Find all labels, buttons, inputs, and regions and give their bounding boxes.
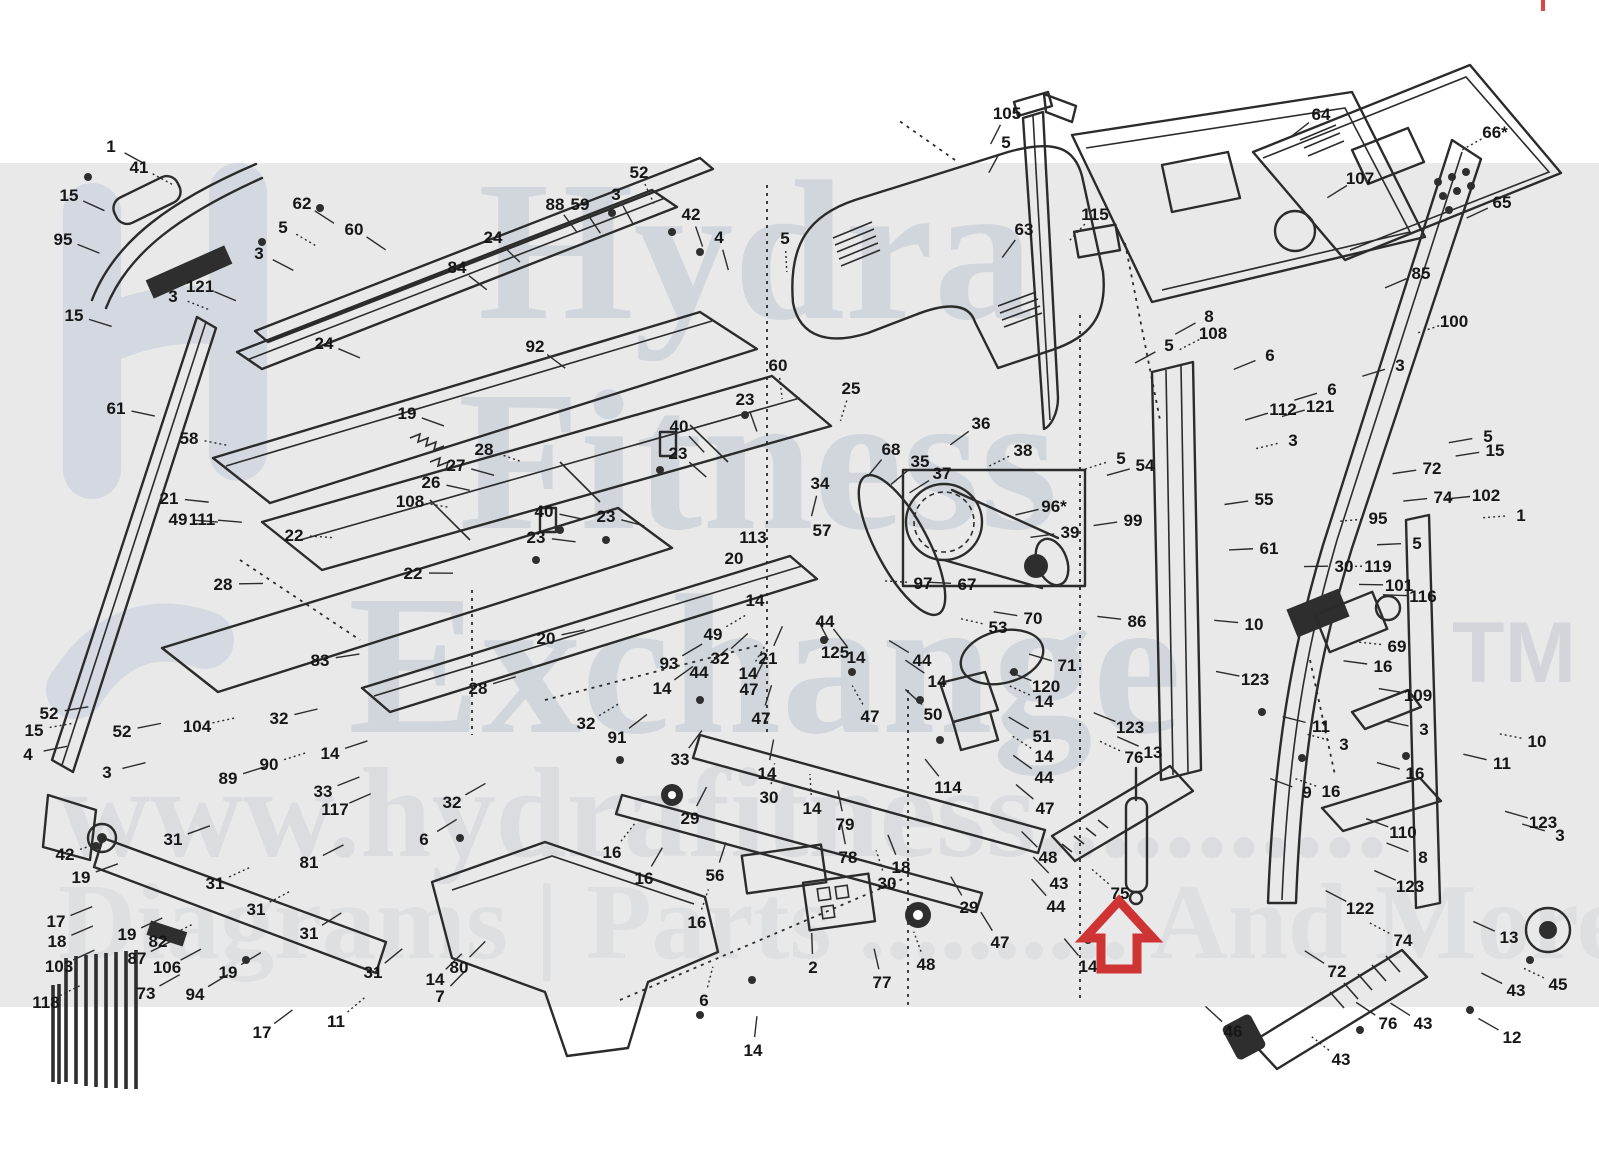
part-label-14: 14: [1035, 692, 1054, 711]
part-label-38: 38: [1014, 441, 1033, 460]
part-label-86: 86: [1128, 612, 1147, 631]
part-label-14: 14: [847, 648, 866, 667]
part-label-18: 18: [892, 858, 911, 877]
part-label-17: 17: [47, 912, 66, 931]
part-label-123: 123: [1529, 813, 1557, 832]
part-label-15: 15: [1486, 441, 1505, 460]
part-label-79: 79: [836, 815, 855, 834]
part-label-12: 12: [1503, 1028, 1522, 1047]
part-label-76: 76: [1125, 748, 1144, 767]
part-label-88: 88: [546, 195, 565, 214]
part-label-46: 46: [1224, 1022, 1243, 1041]
part-label-71: 71: [1058, 656, 1077, 675]
part-label-105: 105: [993, 104, 1021, 123]
exploded-parts-diagram: Hydra Fitness Exchange TM www.hydrafitne…: [0, 0, 1599, 1169]
part-label-111: 111: [189, 510, 216, 529]
part-label-29: 29: [960, 898, 979, 917]
part-label-22: 22: [404, 564, 423, 583]
part-label-33: 33: [671, 750, 690, 769]
part-label-5: 5: [1412, 534, 1421, 553]
part-label-4: 4: [714, 228, 724, 247]
part-label-2: 2: [808, 958, 817, 977]
part-label-15: 15: [60, 186, 79, 205]
part-label-72: 72: [1423, 459, 1442, 478]
part-label-11: 11: [1312, 717, 1330, 736]
part-label-66*: 66*: [1482, 123, 1508, 142]
part-label-3: 3: [1288, 431, 1297, 450]
part-label-121: 121: [1306, 397, 1334, 416]
part-label-43: 43: [1414, 1014, 1433, 1033]
part-label-4: 4: [23, 745, 33, 764]
part-label-52: 52: [630, 163, 649, 182]
part-label-84: 84: [448, 258, 467, 277]
part-label-60: 60: [345, 220, 364, 239]
part-label-20: 20: [725, 549, 744, 568]
part-label-80: 80: [450, 958, 469, 977]
part-label-74: 74: [1394, 931, 1413, 950]
part-label-65: 65: [1493, 193, 1512, 212]
part-label-17: 17: [253, 1023, 272, 1042]
part-label-106: 106: [153, 958, 181, 977]
part-label-50: 50: [924, 705, 943, 724]
part-label-39: 39: [1061, 523, 1080, 542]
part-label-59: 59: [571, 195, 590, 214]
part-label-3: 3: [611, 185, 620, 204]
part-label-10: 10: [1245, 615, 1264, 634]
part-label-16: 16: [1322, 782, 1341, 801]
part-label-110: 110: [1389, 823, 1416, 842]
part-label-44: 44: [1035, 768, 1054, 787]
part-label-26: 26: [422, 473, 441, 492]
part-label-28: 28: [214, 575, 233, 594]
part-label-95: 95: [1369, 509, 1388, 528]
part-label-6: 6: [699, 991, 708, 1010]
part-label-81: 81: [300, 853, 319, 872]
part-label-14: 14: [803, 799, 822, 818]
part-label-109: 109: [1404, 686, 1432, 705]
part-label-16: 16: [635, 869, 654, 888]
part-label-58: 58: [180, 429, 199, 448]
part-label-3: 3: [1555, 826, 1564, 845]
watermark-bottom-row: Diagrams | Parts .......... And More: [58, 863, 1599, 982]
part-label-14: 14: [1079, 957, 1098, 976]
part-label-63: 63: [1015, 220, 1034, 239]
part-label-117: 117: [321, 800, 348, 819]
part-label-19: 19: [398, 404, 417, 423]
part-label-102: 102: [1472, 486, 1500, 505]
part-label-11: 11: [1493, 754, 1511, 773]
red-tick-mark: [1541, 0, 1545, 11]
part-label-64: 64: [1312, 105, 1331, 124]
part-label-47: 47: [1036, 799, 1055, 818]
part-label-122: 122: [1346, 899, 1374, 918]
part-label-32: 32: [443, 793, 462, 812]
part-label-76: 76: [1379, 1014, 1398, 1033]
part-label-123: 123: [1241, 670, 1269, 689]
part-label-56: 56: [706, 866, 725, 885]
part-label-27: 27: [447, 456, 466, 475]
part-label-14: 14: [744, 1041, 763, 1060]
part-label-93: 93: [660, 654, 679, 673]
part-label-5: 5: [1116, 449, 1125, 468]
part-label-1: 1: [1516, 506, 1525, 525]
part-label-15: 15: [65, 306, 84, 325]
part-label-16: 16: [603, 843, 622, 862]
part-label-99: 99: [1124, 511, 1143, 530]
part-label-113: 113: [739, 528, 766, 547]
part-label-54: 54: [1136, 456, 1155, 475]
part-label-31: 31: [206, 874, 225, 893]
part-label-37: 37: [933, 464, 952, 483]
part-label-48: 48: [917, 955, 936, 974]
part-label-116: 116: [1409, 587, 1436, 606]
part-label-100: 100: [1440, 312, 1468, 331]
part-label-23: 23: [527, 528, 546, 547]
part-label-30: 30: [760, 788, 779, 807]
part-label-22: 22: [285, 526, 304, 545]
part-label-62: 62: [293, 194, 312, 213]
part-label-11: 11: [327, 1012, 345, 1031]
part-label-69: 69: [1388, 637, 1407, 656]
part-label-6: 6: [1265, 346, 1274, 365]
part-label-32: 32: [270, 709, 289, 728]
part-label-61: 61: [1260, 539, 1279, 558]
part-label-24: 24: [315, 334, 334, 353]
part-label-31: 31: [247, 900, 266, 919]
part-label-61: 61: [107, 399, 126, 418]
part-label-32: 32: [577, 714, 596, 733]
part-label-19: 19: [118, 925, 137, 944]
part-label-112: 112: [1269, 400, 1296, 419]
part-label-3: 3: [102, 763, 111, 782]
part-label-89: 89: [219, 769, 238, 788]
part-label-123: 123: [1396, 877, 1424, 896]
part-label-115: 115: [1081, 205, 1108, 224]
part-label-49: 49: [169, 510, 188, 529]
part-label-95: 95: [54, 230, 73, 249]
part-label-85: 85: [1412, 264, 1431, 283]
part-label-23: 23: [597, 507, 616, 526]
leader-line: [812, 933, 813, 954]
part-label-14: 14: [746, 591, 765, 610]
part-label-82: 82: [149, 932, 168, 951]
part-label-107: 107: [1346, 169, 1374, 188]
part-label-49: 49: [704, 625, 723, 644]
part-label-104: 104: [183, 717, 212, 736]
part-label-114: 114: [934, 778, 962, 797]
part-label-13: 13: [1500, 928, 1519, 947]
part-label-103: 103: [45, 957, 73, 976]
part-label-31: 31: [364, 963, 383, 982]
part-label-31: 31: [300, 924, 319, 943]
part-label-43: 43: [1332, 1050, 1351, 1069]
part-label-30: 30: [1335, 557, 1354, 576]
part-label-35: 35: [911, 452, 930, 471]
part-label-94: 94: [186, 985, 205, 1004]
part-label-42: 42: [56, 845, 75, 864]
part-label-72: 72: [1328, 962, 1347, 981]
part-label-3: 3: [1339, 735, 1348, 754]
part-label-125: 125: [821, 643, 849, 662]
part-label-36: 36: [972, 414, 991, 433]
part-label-42: 42: [682, 205, 701, 224]
part-label-83: 83: [311, 651, 330, 670]
part-label-24: 24: [484, 228, 503, 247]
part-label-43: 43: [1050, 874, 1069, 893]
part-label-15: 15: [25, 721, 44, 740]
part-label-91: 91: [608, 728, 627, 747]
part-label-70: 70: [1024, 609, 1043, 628]
part-label-7: 7: [435, 987, 444, 1006]
part-label-74: 74: [1434, 488, 1453, 507]
part-label-87: 87: [128, 949, 147, 968]
part-label-10: 10: [1528, 732, 1547, 751]
part-label-28: 28: [469, 679, 488, 698]
part-label-44: 44: [690, 663, 709, 682]
part-label-14: 14: [1035, 747, 1054, 766]
part-label-51: 51: [1033, 727, 1052, 746]
part-label-44: 44: [816, 612, 835, 631]
part-label-19: 19: [219, 963, 238, 982]
part-label-5: 5: [1001, 133, 1010, 152]
part-label-45: 45: [1549, 975, 1568, 994]
part-label-47: 47: [752, 709, 771, 728]
part-label-3: 3: [1419, 720, 1428, 739]
part-label-67: 67: [958, 575, 977, 594]
part-label-31: 31: [164, 830, 183, 849]
part-label-23: 23: [736, 390, 755, 409]
part-label-3: 3: [254, 244, 263, 263]
part-label-34: 34: [811, 474, 830, 493]
part-label-5: 5: [278, 218, 287, 237]
part-label-18: 18: [48, 932, 67, 951]
part-label-119: 119: [1364, 557, 1391, 576]
part-label-16: 16: [1374, 657, 1393, 676]
part-label-19: 19: [72, 868, 91, 887]
part-label-13: 13: [1144, 743, 1163, 762]
part-label-108: 108: [396, 492, 424, 511]
part-label-14: 14: [928, 672, 947, 691]
part-label-57: 57: [813, 521, 832, 540]
parts-diagram-page: Hydra Fitness Exchange TM www.hydrafitne…: [0, 0, 1599, 1169]
part-label-14: 14: [653, 679, 672, 698]
part-label-3: 3: [168, 287, 177, 306]
part-label-78: 78: [839, 848, 858, 867]
part-label-48: 48: [1039, 848, 1058, 867]
part-label-77: 77: [873, 973, 892, 992]
part-label-121: 121: [186, 277, 214, 296]
part-label-97: 97: [914, 574, 933, 593]
part-label-25: 25: [842, 379, 861, 398]
part-label-3: 3: [1395, 356, 1404, 375]
part-label-16: 16: [688, 913, 707, 932]
part-label-40: 40: [670, 417, 689, 436]
part-label-123: 123: [1116, 718, 1144, 737]
part-label-23: 23: [669, 444, 688, 463]
part-label-44: 44: [1047, 897, 1066, 916]
part-label-40: 40: [535, 502, 554, 521]
part-label-14: 14: [758, 764, 777, 783]
part-label-47: 47: [740, 680, 759, 699]
part-label-33: 33: [314, 782, 333, 801]
part-label-5: 5: [1164, 336, 1173, 355]
part-label-53: 53: [989, 618, 1008, 637]
part-label-68: 68: [882, 440, 901, 459]
part-label-55: 55: [1255, 490, 1274, 509]
part-label-32: 32: [711, 649, 730, 668]
part-label-47: 47: [861, 707, 880, 726]
part-label-118: 118: [32, 993, 59, 1012]
part-label-20: 20: [537, 629, 556, 648]
part-label-41: 41: [130, 158, 149, 177]
part-label-21: 21: [759, 649, 778, 668]
part-label-29: 29: [681, 809, 700, 828]
part-label-5: 5: [780, 229, 789, 248]
part-label-92: 92: [526, 337, 545, 356]
part-label-73: 73: [137, 984, 156, 1003]
part-label-108: 108: [1199, 324, 1227, 343]
part-label-47: 47: [991, 933, 1010, 952]
part-label-6: 6: [419, 830, 428, 849]
part-label-28: 28: [475, 440, 494, 459]
part-label-1: 1: [106, 137, 115, 156]
part-label-16: 16: [1406, 764, 1425, 783]
part-label-44: 44: [913, 651, 932, 670]
watermark-tm: TM: [1452, 605, 1576, 701]
part-label-9: 9: [1302, 783, 1311, 802]
part-label-14: 14: [321, 744, 340, 763]
part-label-90: 90: [260, 755, 279, 774]
part-label-52: 52: [113, 722, 132, 741]
part-label-21: 21: [160, 489, 179, 508]
part-label-43: 43: [1507, 981, 1526, 1000]
part-label-60: 60: [769, 356, 788, 375]
part-label-8: 8: [1418, 848, 1427, 867]
part-label-96*: 96*: [1041, 497, 1067, 516]
